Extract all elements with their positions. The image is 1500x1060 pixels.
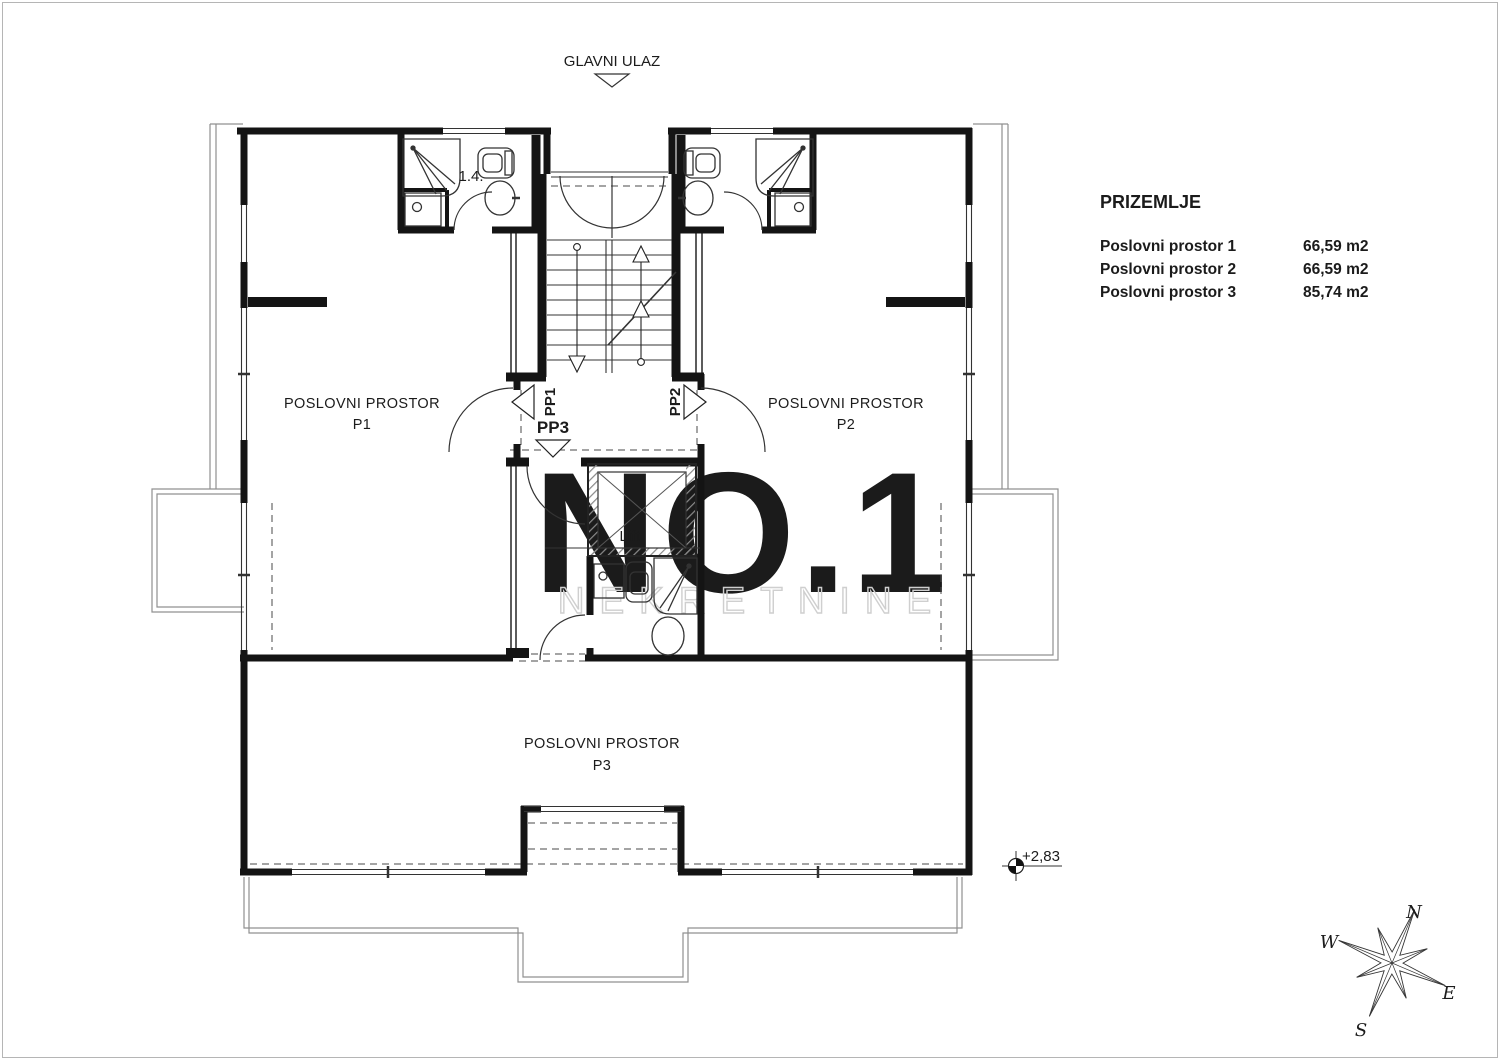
compass-w-label: W bbox=[1320, 932, 1340, 953]
room-p2-title: POSLOVNI PROSTOR bbox=[768, 396, 924, 412]
compass-n-label: N bbox=[1405, 902, 1423, 923]
room-p2-number: P2 bbox=[837, 417, 856, 433]
legend-row-1-area: 66,59 m2 bbox=[1303, 238, 1369, 255]
room-p3-title: POSLOVNI PROSTOR bbox=[524, 736, 680, 752]
wall-stub-p1 bbox=[248, 297, 327, 307]
legend-row-2-label: Poslovni prostor 2 bbox=[1100, 261, 1236, 278]
bathroom-label: 1.4. bbox=[458, 168, 483, 185]
elevation-value: +2,83 bbox=[1022, 848, 1060, 865]
room-p1-number: P1 bbox=[353, 417, 372, 433]
legend-row-2-area: 66,59 m2 bbox=[1303, 261, 1369, 278]
pp1-label: PP1 bbox=[542, 388, 559, 416]
floor-plan-drawing: NO.1 NEKRETNINE bbox=[0, 0, 1500, 1060]
compass-e-label: E bbox=[1441, 983, 1455, 1004]
room-p3-number: P3 bbox=[593, 758, 612, 774]
legend-title: PRIZEMLJE bbox=[1100, 192, 1201, 212]
lift-label: Lift bbox=[620, 529, 641, 545]
pp2-label: PP2 bbox=[667, 388, 684, 416]
legend-row-3-label: Poslovni prostor 3 bbox=[1100, 284, 1236, 301]
compass-s-label: S bbox=[1355, 1020, 1367, 1041]
room-p1-title: POSLOVNI PROSTOR bbox=[284, 396, 440, 412]
floorplan-page: NO.1 NEKRETNINE bbox=[0, 0, 1500, 1060]
legend-row-1-label: Poslovni prostor 1 bbox=[1100, 238, 1236, 255]
entrance-label: GLAVNI ULAZ bbox=[564, 53, 660, 70]
pp3-label: PP3 bbox=[537, 418, 569, 437]
watermark-nekretnine: NEKRETNINE bbox=[558, 580, 946, 621]
wall-stub-p2 bbox=[886, 297, 965, 307]
legend-row-3-area: 85,74 m2 bbox=[1303, 284, 1369, 301]
